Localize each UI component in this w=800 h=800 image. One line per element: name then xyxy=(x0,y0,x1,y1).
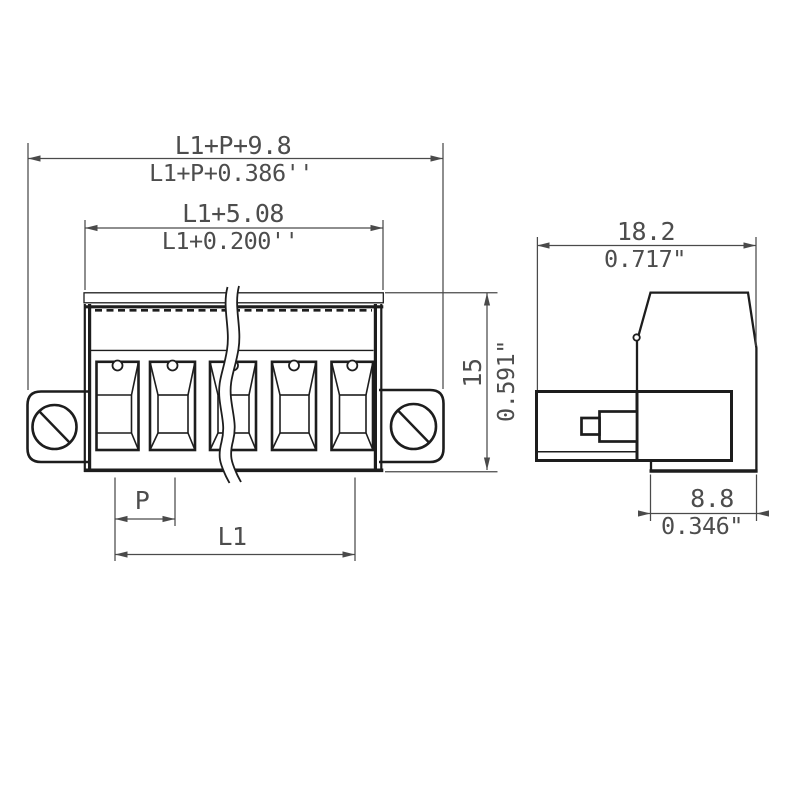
dim-total-mm-label: L1+P+9.8 xyxy=(175,131,291,160)
technical-drawing: L1+P+9.8 L1+P+0.386'' L1+5.08 L1+0.200''… xyxy=(0,0,800,800)
dim-side-width-in-label: 0.717" xyxy=(604,245,686,273)
terminal-cell-2 xyxy=(150,361,195,451)
terminal-cell-5 xyxy=(332,361,374,451)
left-flange xyxy=(28,392,89,463)
side-view xyxy=(537,293,758,471)
cell5-screw-hole xyxy=(347,361,357,371)
front-view xyxy=(28,286,444,483)
dim-body-mm-label: L1+5.08 xyxy=(182,199,284,228)
side-pin-inner xyxy=(582,418,600,435)
cell4-screw-hole xyxy=(289,361,299,371)
dim-side-width-mm-label: 18.2 xyxy=(617,217,675,246)
dim-plug-depth-in-label: 0.346" xyxy=(661,512,743,540)
dim-pitch: P xyxy=(115,478,175,562)
cell1-screw-hole xyxy=(113,361,123,371)
dimensions: L1+P+9.8 L1+P+0.386'' L1+5.08 L1+0.200''… xyxy=(28,131,769,561)
drawing-canvas: L1+P+9.8 L1+P+0.386'' L1+5.08 L1+0.200''… xyxy=(0,0,800,800)
dim-plug-depth: 8.8 0.346" xyxy=(638,475,769,541)
dim-total-in-label: L1+P+0.386'' xyxy=(149,159,313,187)
side-latch-detail xyxy=(633,334,639,340)
cell2-screw-hole xyxy=(168,361,178,371)
dim-height-mm-label: 15 xyxy=(458,358,487,387)
right-flange xyxy=(379,390,444,462)
terminal-cell-1 xyxy=(97,361,139,451)
dim-body-in-label: L1+0.200'' xyxy=(162,227,298,255)
terminal-cell-4 xyxy=(272,361,316,451)
dim-length-label: L1 xyxy=(217,522,246,551)
dim-height-in-label: 0.591" xyxy=(492,340,520,422)
side-pin-outer xyxy=(600,412,638,442)
dim-plug-depth-mm-label: 8.8 xyxy=(690,484,734,513)
dim-pitch-label: P xyxy=(135,486,150,515)
dim-body-width: L1+5.08 L1+0.200'' xyxy=(85,199,383,290)
